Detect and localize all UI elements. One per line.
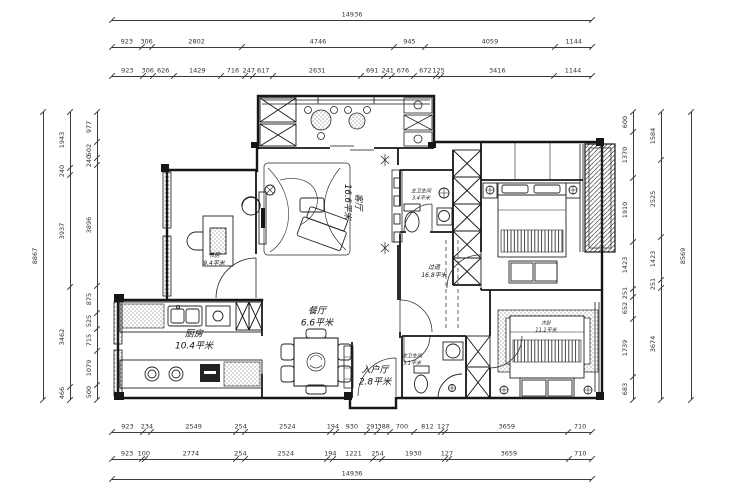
- dim-label: 251: [622, 287, 629, 299]
- dim-label: 234: [141, 424, 153, 431]
- dim-label: 3896: [86, 217, 93, 234]
- dim-label: 2802: [188, 39, 205, 46]
- dim-label: 652: [622, 302, 629, 314]
- dim-label: 1930: [405, 451, 422, 458]
- dim-label: 2524: [278, 451, 295, 458]
- dim-line: [112, 76, 592, 77]
- dim-label: 2774: [183, 451, 200, 458]
- dim-label: 1370: [622, 147, 629, 164]
- dim-label: 716: [227, 68, 239, 75]
- dim-label: 691: [366, 68, 378, 75]
- dim-label: 1423: [622, 257, 629, 274]
- dim-label: 1429: [189, 68, 206, 75]
- dim-label: 525: [86, 315, 93, 327]
- dim-label: 1144: [565, 39, 582, 46]
- dim-label: 127: [437, 424, 449, 431]
- living-room-furniture: [242, 154, 402, 255]
- dim-label: 1739: [622, 340, 629, 357]
- dim-label: 3416: [489, 68, 506, 75]
- dim-label: 251: [650, 278, 657, 290]
- dim-label: 194: [327, 424, 339, 431]
- dim-label: 1221: [345, 451, 362, 458]
- dim-label: 3462: [59, 329, 66, 346]
- dim-label: 923: [121, 451, 133, 458]
- dim-label: 1423: [650, 251, 657, 268]
- dim-label: 240: [86, 155, 93, 167]
- dim-label: 127: [441, 451, 453, 458]
- dim-label: 3659: [498, 424, 515, 431]
- dim-label: 2524: [279, 424, 296, 431]
- dim-label: 676: [397, 68, 409, 75]
- dim-label: 3937: [59, 223, 66, 240]
- dim-label: 875: [86, 293, 93, 305]
- dim-label: 8569: [680, 248, 687, 265]
- room-label-study: 书房 9.4平米: [203, 252, 225, 268]
- dim-line: [112, 459, 592, 460]
- dim-label: 2525: [650, 190, 657, 207]
- dim-label: 672: [419, 68, 431, 75]
- dim-label: 14936: [342, 471, 363, 478]
- dim-label: 254: [371, 451, 383, 458]
- dim-label: 241: [382, 68, 394, 75]
- dim-label: 1910: [622, 201, 629, 218]
- dim-line: [661, 112, 662, 400]
- dim-line: [70, 112, 71, 400]
- dim-label: 617: [257, 68, 269, 75]
- dim-label: 1943: [59, 132, 66, 149]
- dim-label: 710: [574, 451, 586, 458]
- dim-label: 240: [59, 165, 66, 177]
- dim-label: 683: [622, 382, 629, 394]
- dim-label: 306: [140, 39, 152, 46]
- dim-line: [112, 479, 592, 480]
- dim-label: 194: [324, 451, 336, 458]
- dim-label: 466: [59, 387, 66, 399]
- dining-furniture: [281, 329, 353, 394]
- dim-label: 500: [86, 386, 93, 398]
- room-label-kitchen: 厨房 10.4平米: [175, 329, 213, 352]
- dim-label: 2631: [309, 68, 326, 75]
- dim-label: 710: [574, 424, 586, 431]
- dim-label: 306: [141, 68, 153, 75]
- dim-label: 388: [378, 424, 390, 431]
- room-label-master-bathroom: 主卫生间 3.4平米: [411, 189, 431, 202]
- floor-plan-sheet: 客厅 16.6平米 餐厅 6.6平米 厨房 10.4平米 入户厅 2.8平米 书…: [0, 0, 740, 500]
- dim-label: 1079: [86, 360, 93, 377]
- dim-label: 700: [396, 424, 408, 431]
- dim-label: 923: [121, 424, 133, 431]
- dim-line: [43, 112, 44, 400]
- room-label-second-bedroom: 次卧 11.1平米: [535, 321, 556, 334]
- dim-label: 100: [138, 451, 150, 458]
- dim-label: 3659: [501, 451, 518, 458]
- dim-label: 1584: [650, 128, 657, 145]
- dim-label: 254: [234, 451, 246, 458]
- dim-label: 2549: [185, 424, 202, 431]
- dim-label: 715: [86, 334, 93, 346]
- dim-label: 125: [432, 68, 444, 75]
- room-label-living-room: 客厅 16.6平米: [341, 184, 363, 220]
- dim-label: 600: [622, 116, 629, 128]
- dim-label: 4746: [310, 39, 327, 46]
- dim-label: 945: [403, 39, 415, 46]
- dim-label: 977: [86, 121, 93, 133]
- dim-label: 812: [421, 424, 433, 431]
- room-label-hallway: 过道 16.8平米: [421, 264, 446, 280]
- wall-insulation-stipple: [114, 172, 171, 396]
- dim-label: 4059: [482, 39, 499, 46]
- dim-label: 626: [157, 68, 169, 75]
- dim-label: 1144: [565, 68, 582, 75]
- dim-label: 14936: [342, 12, 363, 19]
- room-label-second-bathroom: 次卫生间 3.1平米: [402, 354, 422, 367]
- dim-label: 8867: [32, 248, 39, 265]
- dim-label: 923: [121, 68, 133, 75]
- master-bedroom-furniture: [483, 142, 580, 283]
- dim-label: 3674: [650, 336, 657, 353]
- dim-line: [633, 112, 634, 400]
- balcony-furniture: [305, 98, 433, 146]
- second-bathroom-fixtures: [414, 342, 463, 398]
- dim-label: 923: [121, 39, 133, 46]
- dim-label: 930: [346, 424, 358, 431]
- room-label-entry-hall: 入户厅 2.8平米: [359, 365, 391, 388]
- dim-label: 247: [243, 68, 255, 75]
- dim-line: [691, 112, 692, 400]
- dim-line: [112, 47, 592, 48]
- balcony-hatch: [585, 144, 615, 252]
- dim-line: [112, 432, 592, 433]
- dim-line: [112, 20, 592, 21]
- room-label-dining-room: 餐厅 6.6平米: [301, 306, 333, 329]
- dim-label: 254: [234, 424, 246, 431]
